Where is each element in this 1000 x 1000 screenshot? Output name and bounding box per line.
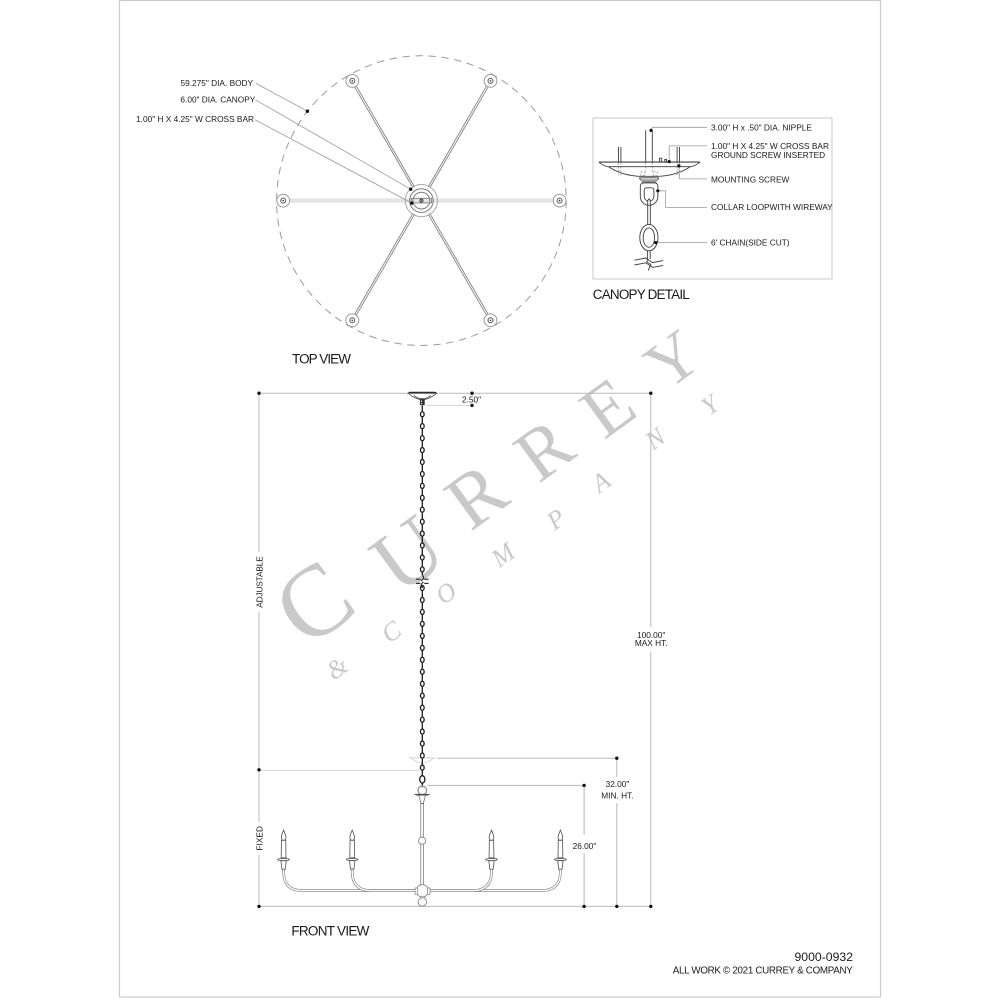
svg-text:6' CHAIN(SIDE CUT): 6' CHAIN(SIDE CUT) [711, 237, 790, 247]
svg-text:TOP VIEW: TOP VIEW [292, 351, 351, 366]
svg-text:32.00": 32.00" [606, 779, 630, 789]
svg-text:ALL WORK © 2021 CURREY & COMPA: ALL WORK © 2021 CURREY & COMPANY [673, 966, 853, 977]
svg-text:FIXED: FIXED [254, 826, 264, 851]
svg-text:COLLAR LOOPWITH WIREWAY: COLLAR LOOPWITH WIREWAY [711, 202, 833, 212]
svg-text:6.00" DIA. CANOPY: 6.00" DIA. CANOPY [180, 94, 255, 104]
svg-text:FRONT VIEW: FRONT VIEW [291, 923, 369, 938]
svg-text:MOUNTING SCREW: MOUNTING SCREW [711, 175, 790, 185]
svg-text:GROUND SCREW INSERTED: GROUND SCREW INSERTED [711, 150, 825, 160]
svg-text:9000-0932: 9000-0932 [795, 950, 854, 964]
svg-text:1.00" H X 4.25" W CROSS BAR: 1.00" H X 4.25" W CROSS BAR [136, 114, 254, 124]
svg-text:ADJUSTABLE: ADJUSTABLE [254, 556, 264, 608]
svg-text:26.00": 26.00" [573, 841, 597, 851]
svg-text:MAX HT.: MAX HT. [635, 638, 668, 648]
svg-text:59.275" DIA. BODY: 59.275" DIA. BODY [181, 78, 254, 88]
svg-text:2.50": 2.50" [462, 395, 481, 405]
svg-text:3.00" H x .50" DIA. NIPPLE: 3.00" H x .50" DIA. NIPPLE [711, 123, 812, 133]
svg-text:MIN. HT.: MIN. HT. [601, 791, 633, 801]
svg-text:CANOPY DETAIL: CANOPY DETAIL [593, 287, 690, 302]
